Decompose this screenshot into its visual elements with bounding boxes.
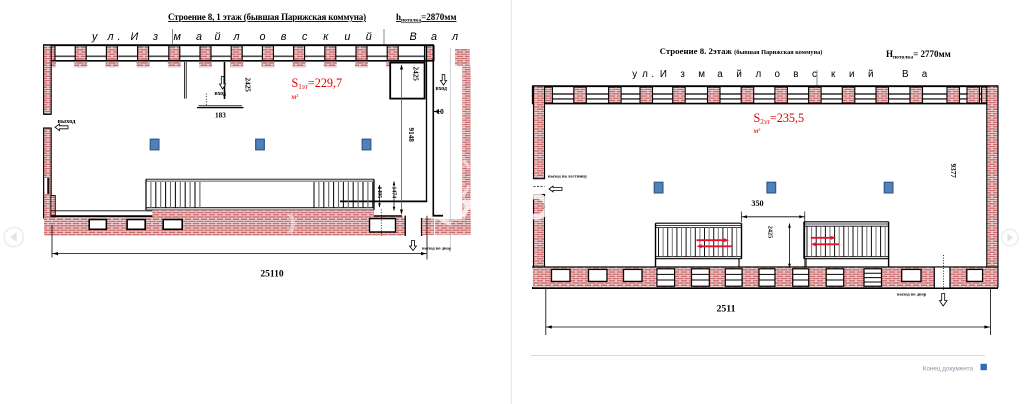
svg-text:25110: 25110 <box>260 270 283 280</box>
svg-text:2425: 2425 <box>766 226 773 238</box>
svg-text:1474: 1474 <box>390 187 396 199</box>
svg-text:10: 10 <box>437 108 445 116</box>
svg-text:выход во двор: выход во двор <box>897 292 927 297</box>
svg-text:выход во двор: выход во двор <box>422 246 452 251</box>
svg-text:350: 350 <box>751 199 763 208</box>
svg-text:Строение 8, 1 этаж (бывшая Пар: Строение 8, 1 этаж (бывшая Парижская ком… <box>168 12 366 22</box>
svg-text:выход на лестницу: выход на лестницу <box>548 174 588 179</box>
svg-text:1495: 1495 <box>376 187 382 199</box>
svg-text:183: 183 <box>215 112 226 120</box>
svg-text:2425: 2425 <box>412 67 420 82</box>
svg-text:Конец документа: Конец документа <box>923 366 974 373</box>
svg-text:9148: 9148 <box>407 128 415 143</box>
svg-text:2511: 2511 <box>716 304 735 315</box>
svg-text:9377: 9377 <box>949 164 957 179</box>
svg-text:вход: вход <box>436 86 448 92</box>
svg-text:вход: вход <box>215 91 227 97</box>
svg-text:выход: выход <box>58 118 77 125</box>
svg-text:2425: 2425 <box>244 78 252 93</box>
